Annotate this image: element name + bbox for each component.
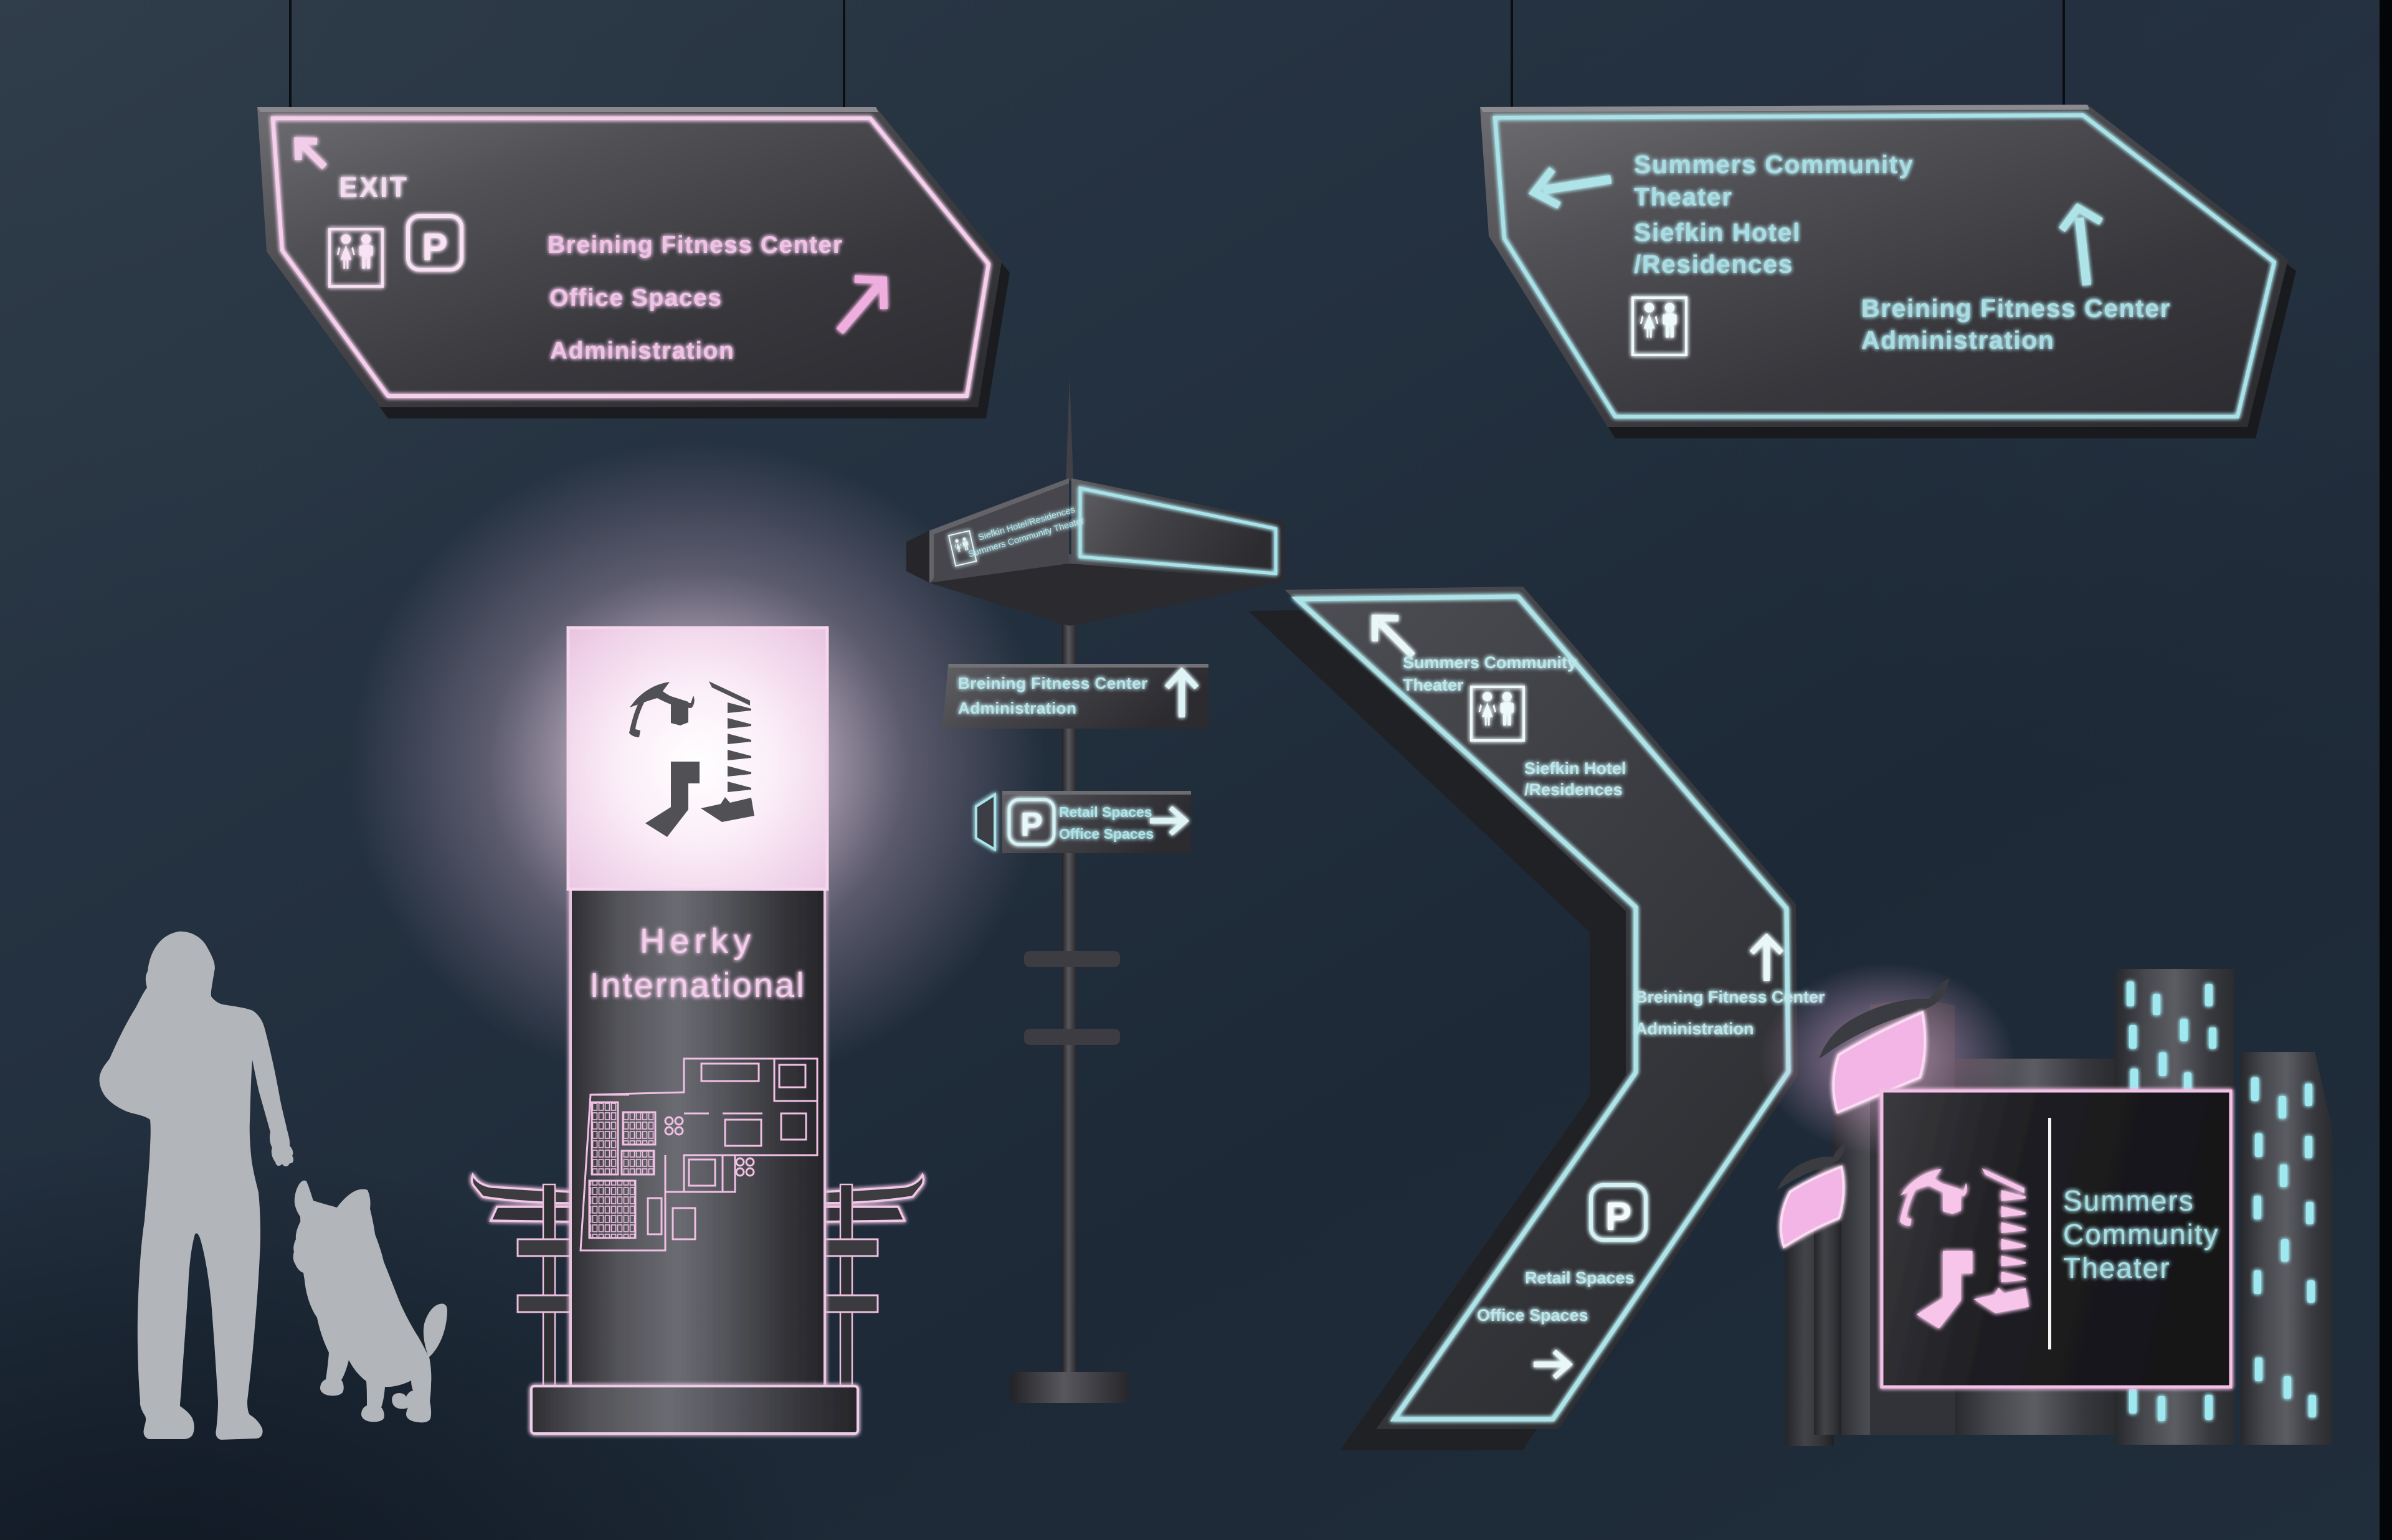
- svg-text:Retail Spaces: Retail Spaces: [1525, 1268, 1635, 1287]
- svg-text:Community: Community: [2063, 1218, 2219, 1250]
- svg-text:Office Spaces: Office Spaces: [549, 285, 722, 311]
- svg-text:Summers Community: Summers Community: [1634, 150, 1914, 179]
- svg-text:Herky: Herky: [640, 921, 756, 960]
- svg-text:Retail Spaces: Retail Spaces: [1059, 804, 1152, 820]
- svg-text:Summers Community: Summers Community: [1403, 653, 1577, 672]
- svg-text:Theater: Theater: [1634, 182, 1733, 211]
- svg-text:Administration: Administration: [1861, 326, 2054, 354]
- svg-text:Administration: Administration: [550, 338, 734, 364]
- svg-text:Administration: Administration: [958, 699, 1076, 717]
- svg-text:Breining Fitness Center: Breining Fitness Center: [958, 674, 1148, 692]
- svg-text:P: P: [1605, 1194, 1632, 1239]
- svg-text:Summers: Summers: [2063, 1184, 2195, 1217]
- svg-text:Siefkin Hotel: Siefkin Hotel: [1524, 759, 1626, 778]
- svg-text:/Residences: /Residences: [1524, 780, 1623, 799]
- svg-text:Theater: Theater: [2063, 1252, 2171, 1284]
- svg-text:P: P: [422, 226, 447, 269]
- svg-text:Administration: Administration: [1635, 1019, 1754, 1038]
- svg-text:/Residences: /Residences: [1634, 250, 1793, 278]
- svg-text:Office Spaces: Office Spaces: [1477, 1306, 1588, 1325]
- svg-text:P: P: [1020, 806, 1043, 843]
- svg-text:Siefkin Hotel: Siefkin Hotel: [1634, 218, 1801, 247]
- svg-text:EXIT: EXIT: [339, 171, 409, 203]
- svg-text:International: International: [589, 965, 805, 1004]
- svg-text:Breining Fitness Center: Breining Fitness Center: [1861, 294, 2171, 323]
- svg-text:Office Spaces: Office Spaces: [1059, 826, 1154, 842]
- svg-text:Theater: Theater: [1403, 676, 1464, 694]
- svg-text:Breining Fitness Center: Breining Fitness Center: [548, 232, 843, 258]
